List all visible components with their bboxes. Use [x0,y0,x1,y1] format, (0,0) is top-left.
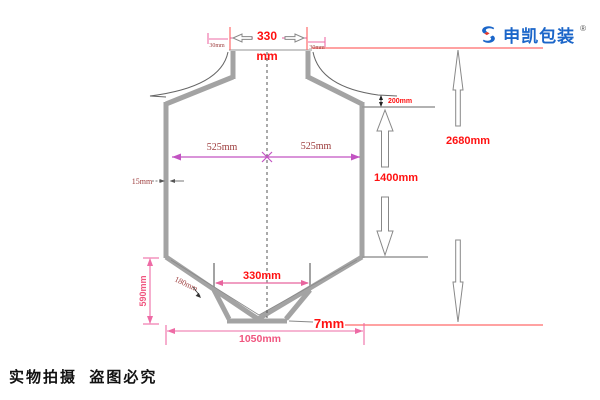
overall-width-arrow-left [167,328,175,334]
top-opening-unit-label: mm [256,49,277,63]
discharge-width-label: 330mm [243,270,281,282]
half-width-arrow-left [172,154,181,161]
cone-left-wall [166,257,258,319]
wall-thickness-label: 15mm [132,177,153,186]
cone-height-arrow-down [147,316,153,324]
body-height-arrow-down [377,197,393,255]
top-left-offset-label: 30mm [209,43,225,49]
body-height-label: 1400mm [374,172,418,184]
shoulder-left-wall [166,77,233,104]
logo-swoosh-top [482,26,494,33]
shoulder-height-label: 200mm [388,98,412,105]
overall-height-arrow-down [453,240,463,322]
body-height-arrow-up [377,110,393,167]
bottom-thickness-pointer-line [289,321,313,322]
logo-swoosh-bottom [483,35,495,42]
shoulder-arrow-up [379,95,383,100]
half-width-left-label: 525mm [207,142,238,153]
drawing-canvas: 330 mm 30mm 30mm 525mm 525mm 15mm 200mm … [0,0,600,400]
brand-name: 申凯包装 [503,22,575,47]
overall-height-label: 2680mm [446,135,490,147]
brand-logo-icon [479,25,498,44]
cone-right-inner-line [259,260,357,315]
shoulder-left-curve [150,52,228,97]
copyright-notice: 实物拍摄 盗图必究 [9,366,157,387]
spout-length-arrow [196,293,201,298]
discharge-width-arrow-right [301,280,309,286]
discharge-width-arrow-left [215,280,223,286]
technical-diagram: 330 mm 30mm 30mm 525mm 525mm 15mm 200mm … [0,0,600,400]
registered-mark: ® [580,24,586,33]
cone-height-label: 590mm [138,275,148,306]
top-opening-arrow-left [233,34,252,42]
overall-width-arrow-right [355,328,363,334]
shoulder-right-curve [313,52,397,96]
brand-logo: 申凯包装 ® [479,22,586,47]
top-opening-arrow-right [285,34,304,42]
cone-height-arrow-up [147,258,153,266]
bottom-thickness-label: 7mm [314,316,344,331]
wall-thickness-arrow-right [170,179,176,183]
top-opening-value-label: 330 [257,29,277,43]
half-width-arrow-right [351,154,360,161]
overall-width-label: 1050mm [239,333,281,345]
half-width-right-label: 525mm [301,141,332,152]
top-right-offset-label: 30mm [309,45,325,51]
overall-height-arrow-up [453,50,463,126]
shoulder-right-wall [308,77,362,104]
